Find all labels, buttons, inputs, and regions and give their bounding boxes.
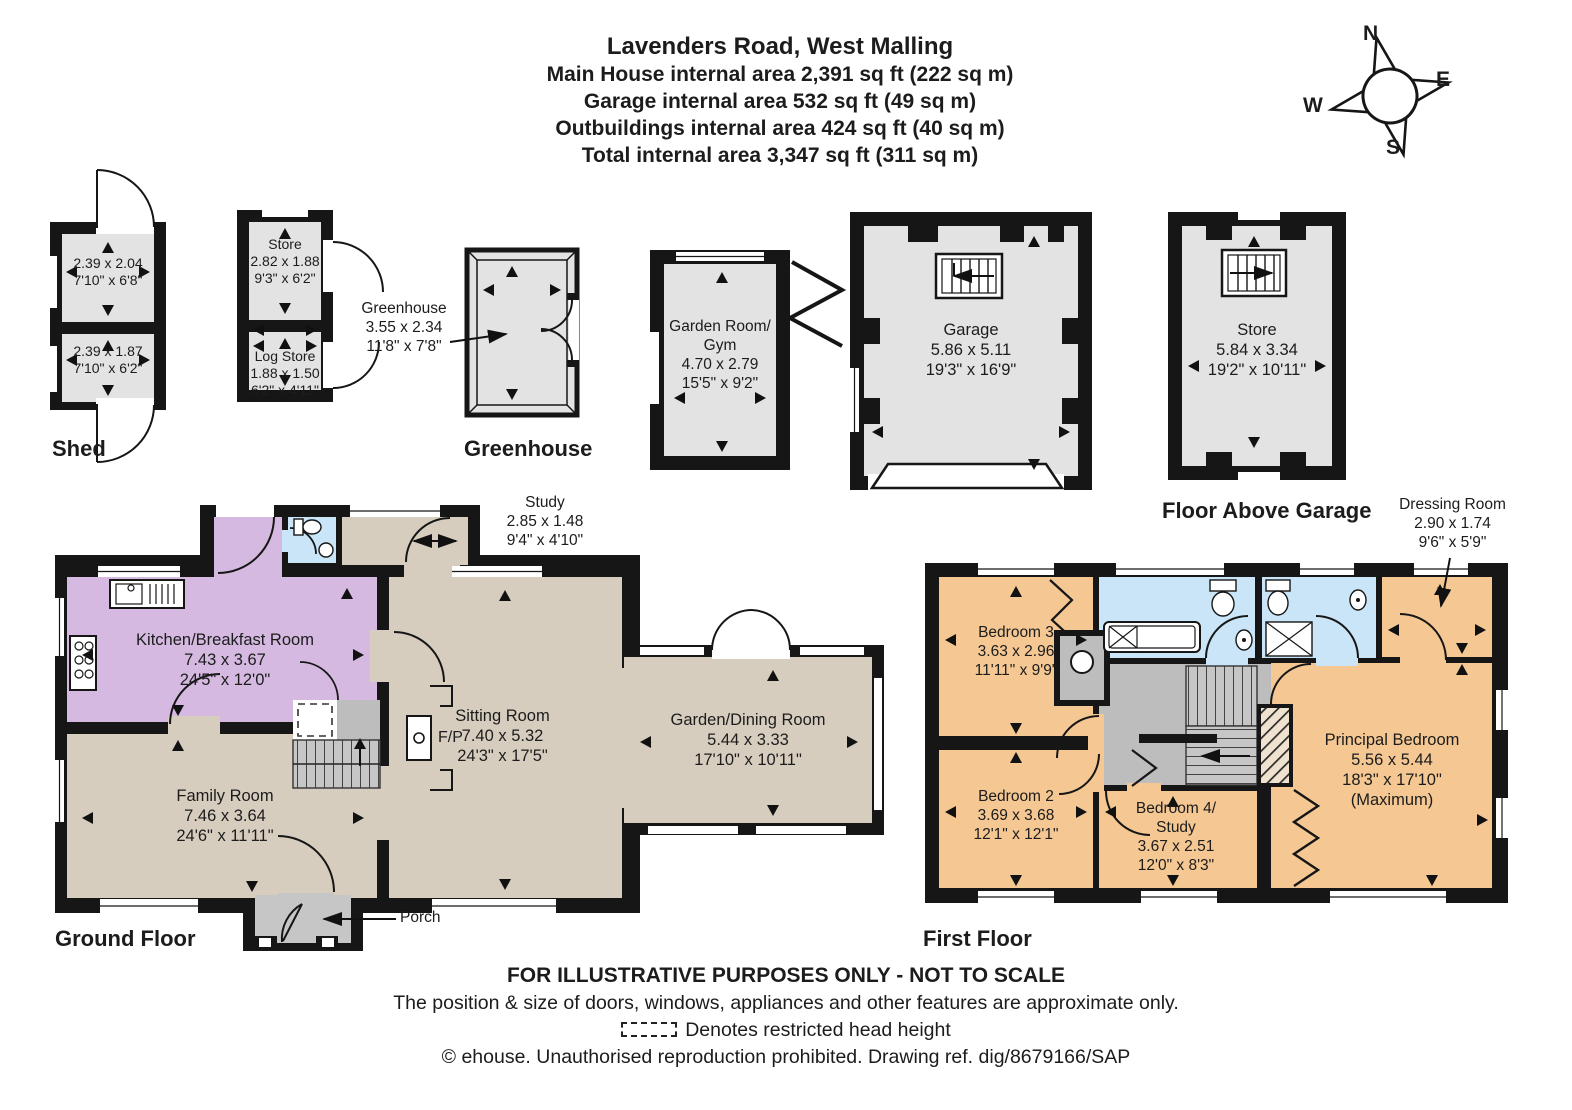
footer-approximate-note: The position & size of doors, windows, a…	[286, 992, 1286, 1016]
floorplan-page: Lavenders Road, West Malling Main House …	[0, 0, 1572, 1110]
dressing-room-label: Dressing Room2.90 x 1.749'6" x 5'9"	[1385, 496, 1520, 553]
title-garage-area: Garage internal area 532 sq ft (49 sq m)	[330, 89, 1230, 115]
study-label: Study2.85 x 1.489'4" x 4'10"	[490, 494, 600, 551]
shed-bottom-room-label: 2.39 x 1.877'10" x 6'2"	[62, 343, 154, 377]
garden-dining-label: Garden/Dining Room5.44 x 3.3317'10" x 10…	[628, 710, 868, 770]
footer-head-height-key: Denotes restricted head height	[286, 1019, 1286, 1043]
compass-south-label: S	[1386, 136, 1400, 160]
footer-copyright: © ehouse. Unauthorised reproduction proh…	[286, 1046, 1286, 1070]
compass-east-label: E	[1436, 68, 1450, 92]
bedroom4-label: Bedroom 4/Study 3.67 x 2.5112'0" x 8'3"	[1102, 800, 1250, 876]
shed-top-room-label: 2.39 x 2.047'10" x 6'8"	[62, 255, 154, 289]
garden-room-label: Garden Room/Gym 4.70 x 2.7915'5" x 9'2"	[662, 318, 778, 394]
compass-west-label: W	[1303, 94, 1323, 118]
principal-bedroom-label: Principal Bedroom5.56 x 5.44 18'3" x 17'…	[1296, 730, 1488, 811]
compass-north-label: N	[1363, 22, 1378, 46]
floor-above-garage-title: Floor Above Garage	[1162, 498, 1371, 525]
bedroom2-label: Bedroom 23.69 x 3.6812'1" x 12'1"	[942, 788, 1090, 845]
bedroom3-label: Bedroom 33.63 x 2.9611'11" x 9'9"	[942, 624, 1090, 681]
porch-label: Porch	[400, 909, 441, 928]
page-title: Lavenders Road, West Malling	[330, 32, 1230, 61]
title-total-area: Total internal area 3,347 sq ft (311 sq …	[330, 143, 1230, 169]
store-label: Store2.82 x 1.889'3" x 6'2"	[249, 236, 321, 287]
title-outbuildings-area: Outbuildings internal area 424 sq ft (40…	[330, 116, 1230, 142]
family-room-label: Family Room7.46 x 3.6424'6" x 11'11"	[95, 786, 355, 846]
ground-floor-title: Ground Floor	[55, 926, 196, 953]
greenhouse-annotation: Greenhouse3.55 x 2.3411'8" x 7'8"	[348, 300, 460, 357]
fireplace-label: F/P	[438, 728, 482, 748]
greenhouse-plan	[450, 250, 579, 415]
first-floor-title: First Floor	[923, 926, 1032, 953]
greenhouse-title: Greenhouse	[464, 436, 592, 463]
restricted-head-height-icon	[621, 1022, 677, 1037]
log-store-label: Log Store1.88 x 1.506'2" x 4'11"	[243, 348, 327, 399]
shed-title: Shed	[52, 436, 106, 463]
sitting-room-label: Sitting Room7.40 x 5.3224'3" x 17'5"	[400, 706, 605, 766]
store-above-garage-label: Store5.84 x 3.3419'2" x 10'11"	[1182, 320, 1332, 380]
footer-disclaimer: FOR ILLUSTRATIVE PURPOSES ONLY - NOT TO …	[286, 963, 1286, 989]
shed-plan	[50, 170, 166, 462]
title-main-house-area: Main House internal area 2,391 sq ft (22…	[330, 62, 1230, 88]
kitchen-label: Kitchen/Breakfast Room7.43 x 3.6724'5" x…	[95, 630, 355, 690]
garage-label: Garage5.86 x 5.1119'3" x 16'9"	[864, 320, 1078, 380]
